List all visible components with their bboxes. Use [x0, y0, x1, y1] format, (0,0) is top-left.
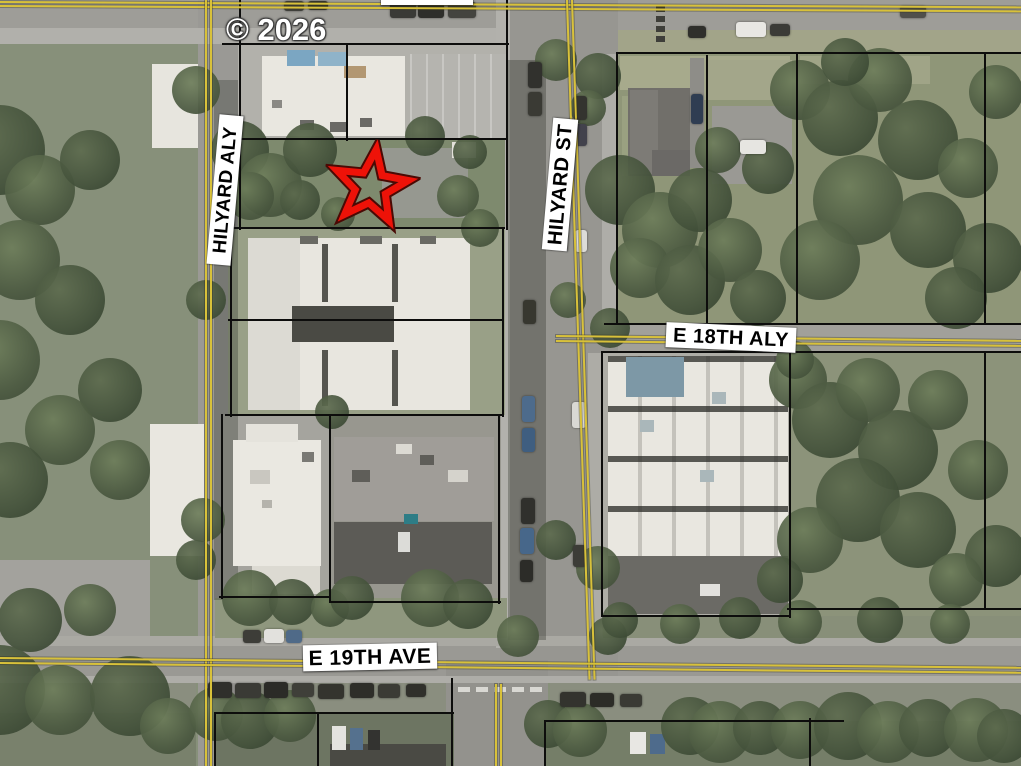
street-label-e-19th-ave: E 19TH AVE	[303, 643, 438, 672]
centerline-alley-a	[205, 0, 207, 766]
road-centerlines-layer	[0, 0, 1021, 766]
centerline-hilyard-south-b	[500, 684, 502, 766]
street-label-e-18th-ave-partial: E 18TH AVE	[381, 0, 473, 5]
centerline-alley-b	[210, 0, 212, 766]
centerline-hilyard-south-a	[495, 684, 497, 766]
copyright-watermark: © 2026	[226, 12, 326, 48]
property-star-marker	[317, 133, 425, 241]
aerial-map: E 18TH AVE HILYARD ALY HILYARD ST E 18TH…	[0, 0, 1021, 766]
